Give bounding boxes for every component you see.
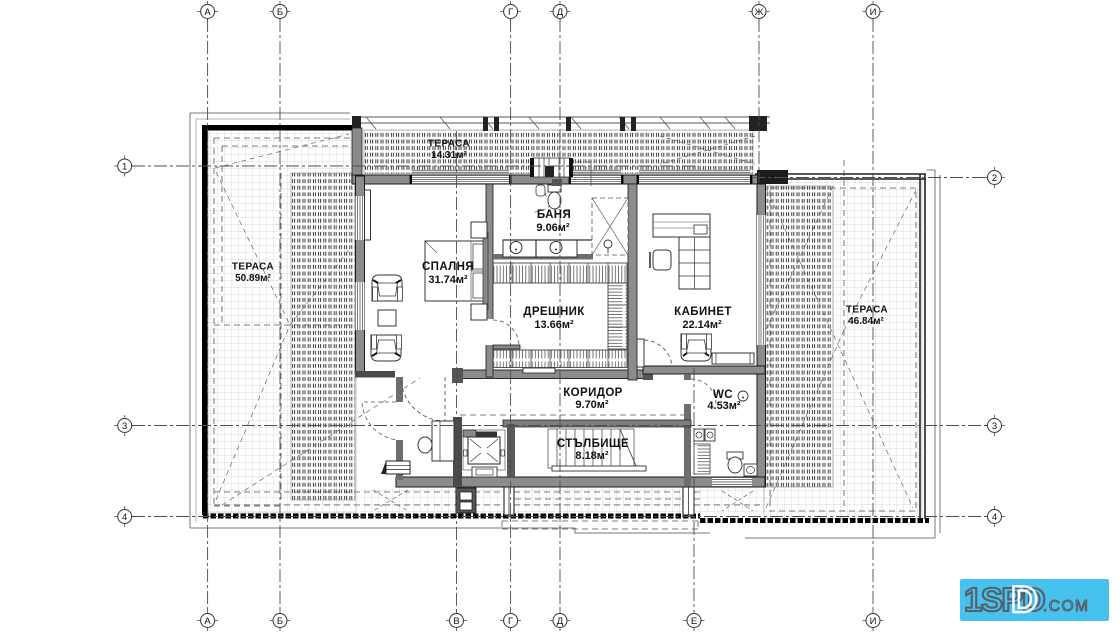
svg-text:.COM: .COM (1043, 598, 1089, 615)
svg-text:4.53м²: 4.53м² (707, 400, 741, 412)
svg-text:4: 4 (122, 512, 127, 523)
svg-text:D: D (1011, 579, 1038, 620)
svg-text:ТЕРАСА: ТЕРАСА (232, 262, 274, 273)
svg-text:2: 2 (992, 173, 997, 184)
svg-text:50.89м²: 50.89м² (235, 273, 271, 284)
svg-text:В: В (453, 616, 459, 627)
svg-text:ДРЕШНИК: ДРЕШНИК (523, 306, 585, 318)
svg-text:Д: Д (557, 7, 564, 18)
svg-text:Б: Б (277, 7, 283, 18)
svg-text:А: А (204, 7, 211, 18)
svg-text:46.84м²: 46.84м² (848, 316, 884, 327)
svg-text:ТЕРАСА: ТЕРАСА (846, 305, 888, 316)
svg-text:И: И (870, 7, 877, 18)
svg-text:9.06м²: 9.06м² (536, 222, 570, 234)
svg-text:Г: Г (508, 616, 513, 627)
svg-text:4: 4 (992, 512, 997, 523)
svg-text:БАНЯ: БАНЯ (537, 209, 571, 221)
svg-text:Д: Д (557, 616, 564, 627)
svg-text:31.74м²: 31.74м² (428, 274, 468, 286)
svg-text:3: 3 (122, 421, 127, 432)
svg-text:Г: Г (508, 7, 513, 18)
svg-text:22.14м²: 22.14м² (682, 319, 722, 331)
svg-text:ТЕРАСА: ТЕРАСА (428, 139, 470, 150)
svg-text:Ж: Ж (755, 7, 764, 18)
svg-text:14.31м²: 14.31м² (431, 150, 467, 161)
svg-text:8.18м²: 8.18м² (575, 450, 609, 462)
svg-text:3: 3 (992, 421, 997, 432)
svg-text:КАБИНЕТ: КАБИНЕТ (674, 306, 732, 318)
svg-text:И: И (870, 616, 877, 627)
svg-text:1: 1 (122, 162, 127, 173)
svg-text:Б: Б (277, 616, 283, 627)
svg-text:КОРИДОР: КОРИДОР (563, 387, 623, 399)
svg-text:9.70м²: 9.70м² (575, 399, 609, 411)
svg-text:13.66м²: 13.66м² (534, 319, 574, 331)
svg-text:А: А (204, 616, 211, 627)
svg-text:СПАЛНЯ: СПАЛНЯ (422, 261, 474, 273)
svg-text:Е: Е (691, 616, 697, 627)
svg-text:СТЪЛБИЩЕ: СТЪЛБИЩЕ (557, 438, 629, 450)
